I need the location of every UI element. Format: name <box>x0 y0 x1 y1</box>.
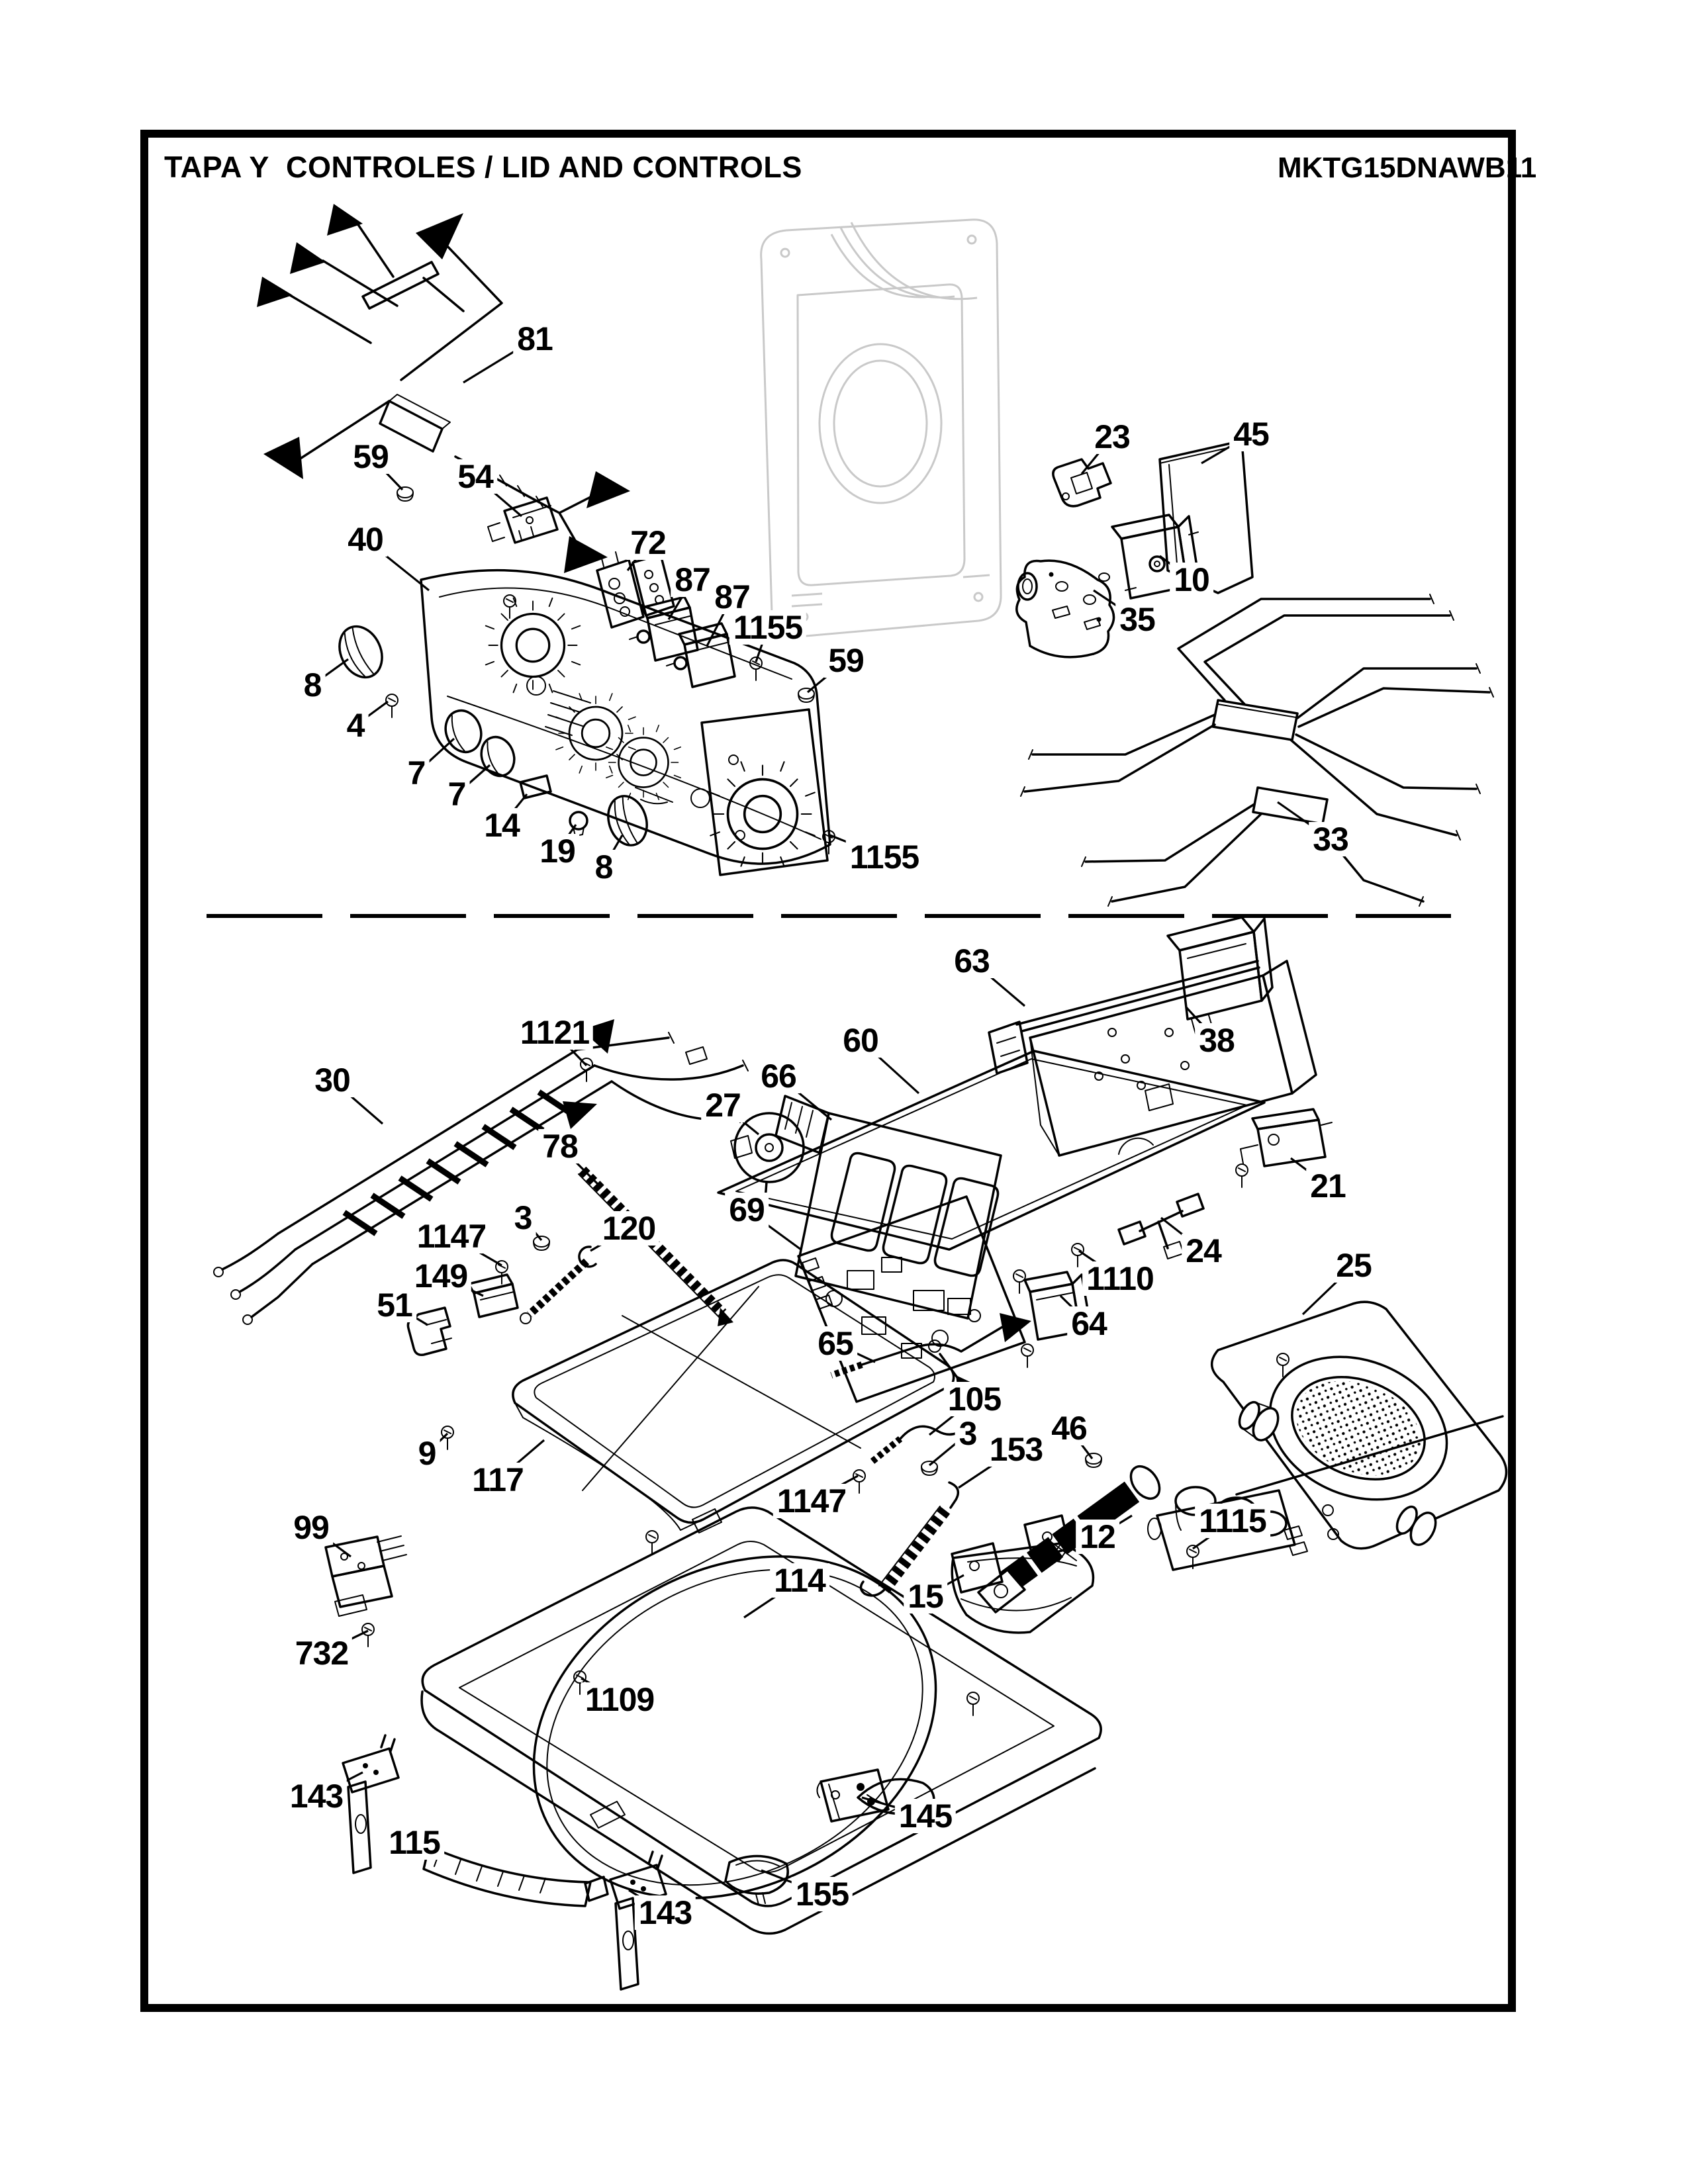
callout-layer: 8159544072878711555984771419811552345103… <box>0 0 1688 2184</box>
callout-143: 143 <box>286 1779 347 1813</box>
callout-9: 9 <box>414 1436 440 1471</box>
callout-10: 10 <box>1170 563 1213 597</box>
callout-1121: 1121 <box>516 1015 593 1050</box>
callout-7: 7 <box>404 756 430 790</box>
callout-45: 45 <box>1229 417 1273 451</box>
callout-3: 3 <box>955 1416 981 1451</box>
callout-19: 19 <box>536 834 579 868</box>
callout-59: 59 <box>824 643 868 678</box>
callout-8: 8 <box>591 850 617 884</box>
callout-114: 114 <box>770 1563 829 1598</box>
callout-7: 7 <box>444 777 470 811</box>
diagram-page: TAPA Y CONTROLES / LID AND CONTROLS MKTG… <box>0 0 1688 2184</box>
callout-143: 143 <box>635 1895 696 1930</box>
callout-1155: 1155 <box>846 840 923 874</box>
callout-732: 732 <box>291 1636 352 1670</box>
callout-40: 40 <box>344 522 387 557</box>
callout-15: 15 <box>904 1579 947 1614</box>
callout-25: 25 <box>1332 1248 1376 1283</box>
callout-8: 8 <box>300 668 326 702</box>
callout-149: 149 <box>410 1259 471 1293</box>
callout-1147: 1147 <box>413 1219 490 1253</box>
callout-38: 38 <box>1195 1023 1239 1058</box>
callout-1147: 1147 <box>773 1484 850 1518</box>
callout-54: 54 <box>453 459 497 494</box>
callout-33: 33 <box>1309 822 1352 856</box>
callout-81: 81 <box>513 322 557 356</box>
callout-105: 105 <box>944 1382 1005 1416</box>
callout-51: 51 <box>373 1288 416 1322</box>
callout-66: 66 <box>757 1059 800 1093</box>
callout-24: 24 <box>1182 1234 1225 1268</box>
callout-35: 35 <box>1115 602 1159 637</box>
callout-65: 65 <box>814 1326 857 1361</box>
callout-69: 69 <box>725 1193 769 1227</box>
callout-12: 12 <box>1076 1520 1119 1554</box>
callout-3: 3 <box>510 1201 536 1235</box>
callout-78: 78 <box>538 1129 582 1163</box>
callout-117: 117 <box>468 1463 528 1497</box>
callout-1109: 1109 <box>581 1682 658 1717</box>
callout-59: 59 <box>349 439 393 474</box>
callout-23: 23 <box>1090 420 1134 454</box>
callout-115: 115 <box>385 1825 444 1860</box>
callout-1155: 1155 <box>729 610 806 645</box>
callout-72: 72 <box>626 525 670 560</box>
callout-46: 46 <box>1047 1411 1091 1445</box>
callout-145: 145 <box>895 1799 956 1833</box>
callout-27: 27 <box>701 1088 745 1122</box>
callout-1110: 1110 <box>1082 1261 1158 1296</box>
callout-64: 64 <box>1067 1306 1111 1341</box>
callout-155: 155 <box>792 1877 853 1911</box>
callout-87: 87 <box>671 563 714 597</box>
callout-99: 99 <box>289 1510 333 1545</box>
callout-14: 14 <box>480 808 524 842</box>
callout-63: 63 <box>950 944 994 978</box>
callout-21: 21 <box>1306 1169 1350 1203</box>
callout-1115: 1115 <box>1195 1504 1270 1538</box>
callout-4: 4 <box>343 708 369 743</box>
callout-120: 120 <box>598 1211 659 1246</box>
callout-60: 60 <box>839 1023 882 1058</box>
callout-30: 30 <box>310 1063 354 1097</box>
callout-153: 153 <box>986 1432 1047 1467</box>
